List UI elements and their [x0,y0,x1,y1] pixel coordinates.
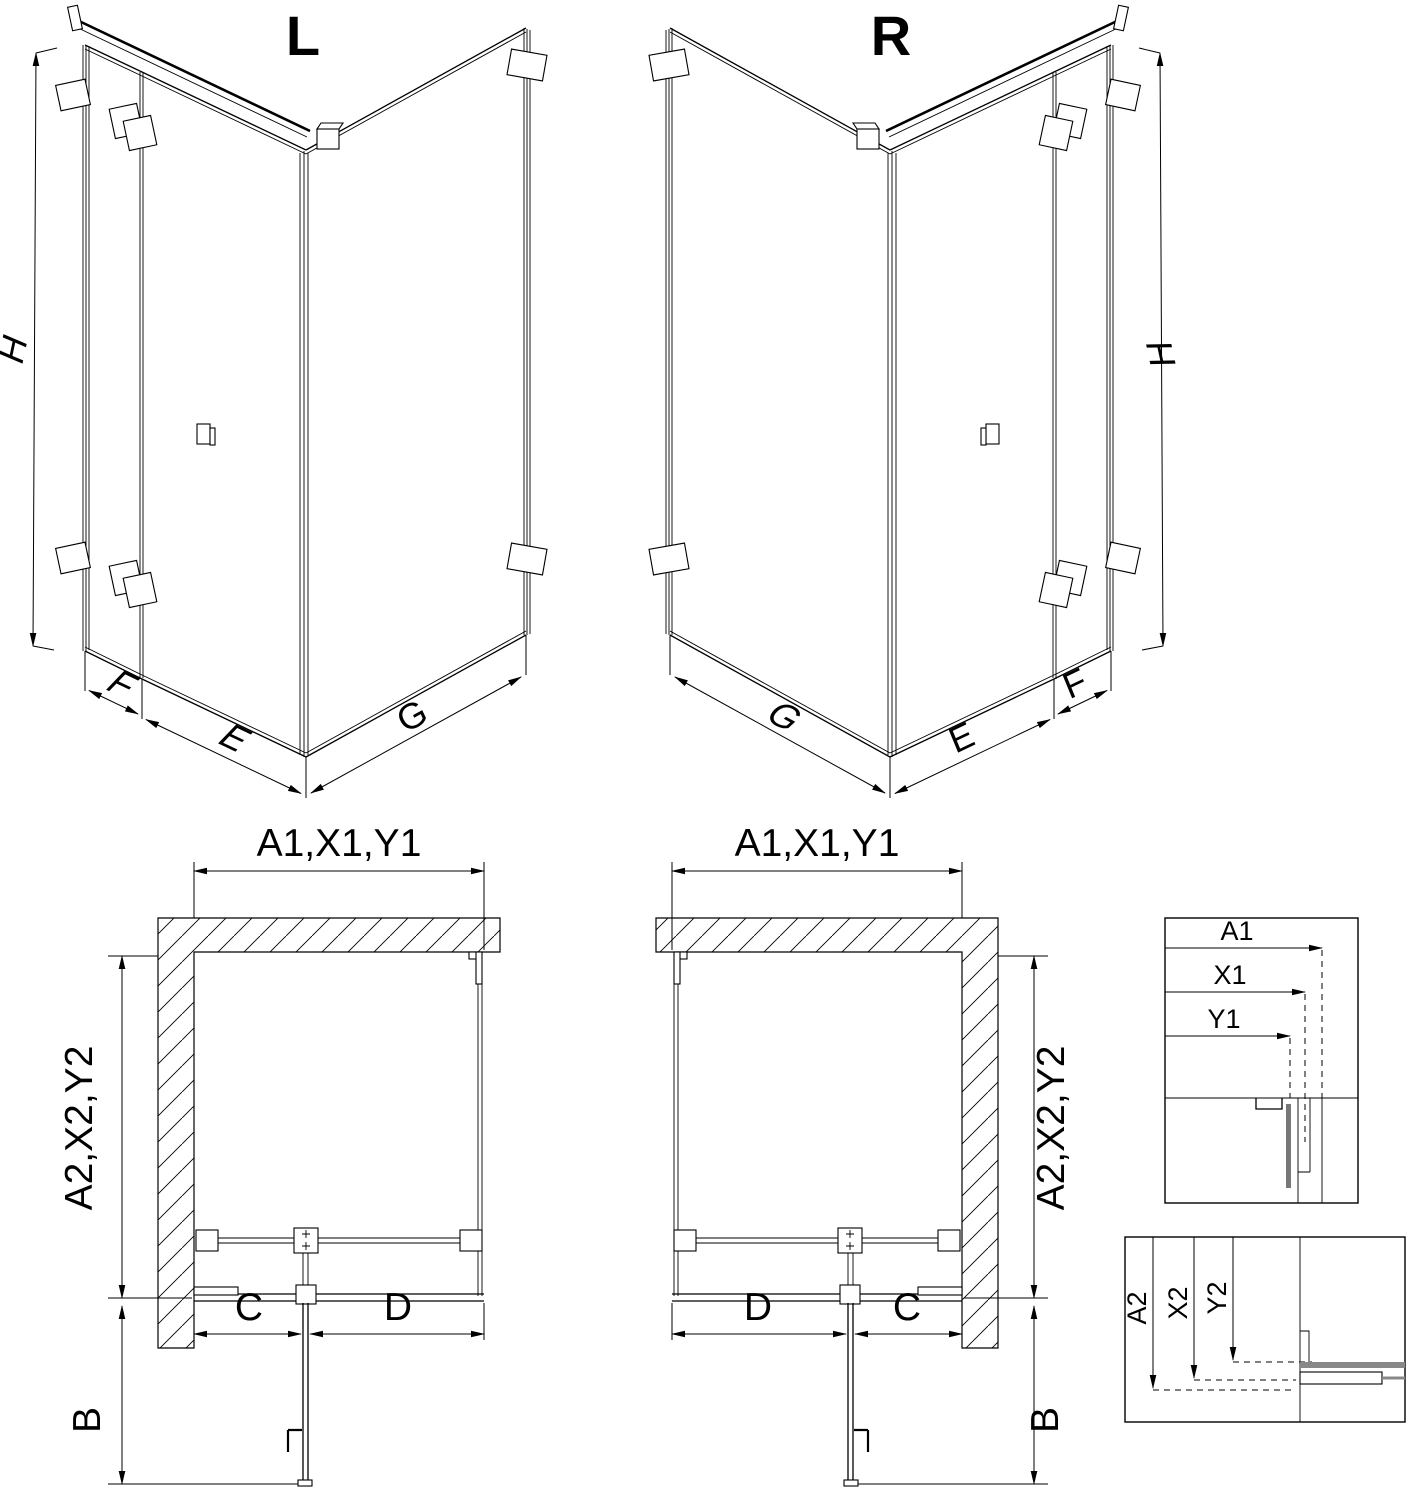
corner-clamp-top [853,123,879,129]
corner-clamp-top [317,123,343,129]
door-hinge-lower [1039,572,1073,607]
detail-label-a1: A1 [1220,916,1253,946]
detail-label-x1: X1 [1213,960,1246,990]
door-handle [986,424,999,444]
door-handle-plan [854,1430,868,1452]
dim-label-open: B [66,1407,109,1433]
dim-label-g: G [387,693,436,739]
profile-section [1300,1372,1382,1384]
door-handle-plan [288,1430,302,1452]
sill-wall-profile [918,1287,962,1295]
wall-bracket [56,542,91,574]
sill-wall-profile [194,1287,238,1295]
iso-right-title: R [871,4,911,67]
panel-wall-profile [476,952,482,984]
glass-section [1300,1362,1405,1368]
bar-wall-mount [938,1230,960,1251]
detail-box-depth: A2 X2 Y2 [1122,1237,1405,1422]
dim-label-top: A1,X1,Y1 [735,822,900,865]
iso-view-left: L H [0,4,547,798]
plan-view-right: A1,X1,Y1 A2,X2,Y2 B C D [656,822,1073,1486]
plan-view-left: A1,X1,Y1 A2,X2,Y2 B C D [58,822,500,1486]
dim-label-side: A2,X2,Y2 [58,1046,101,1211]
dim-label-h: H [1138,337,1184,372]
dim-label-d: D [384,1286,412,1329]
door-handle [197,424,210,444]
detail-box-width: A1 X1 Y1 [1165,916,1358,1203]
technical-drawing: L H [0,0,1416,1499]
corner-clamp [857,129,879,149]
shower-enclosure-dimension-diagram: L H [0,0,1416,1499]
dim-label-open: B [1024,1407,1067,1433]
door-handle-side [981,428,986,445]
bar-corner-mount [674,1230,696,1251]
door-edge-cap [298,1480,312,1486]
wall-bracket [649,49,689,81]
wall-bracket [649,543,689,575]
bar-corner-mount [460,1230,482,1251]
dim-label-g: G [760,693,809,739]
bar-end-cap [1114,5,1129,31]
wall-section [158,918,500,1348]
dim-label-c: C [235,1286,263,1329]
bar-end-cap [68,5,83,31]
door-hinge-upper [1039,115,1073,150]
dim-label-e: E [939,715,984,760]
door-hinge-lower [123,572,157,607]
bar-wall-mount [196,1230,218,1251]
iso-view-right: R H E F G [649,4,1184,798]
detail-label-a2: A2 [1122,1291,1152,1324]
detail-label-y2: Y2 [1202,1281,1232,1314]
wall-section [656,918,998,1348]
dim-label-side: A2,X2,Y2 [1030,1046,1073,1211]
dim-label-e: E [213,715,258,760]
panel-wall-profile [674,952,680,984]
wall-bracket [507,49,547,81]
wall-bracket [507,543,547,575]
dim-label-top: A1,X1,Y1 [257,822,422,865]
dim-label-d: D [744,1286,772,1329]
door-handle-side [210,428,215,445]
wall-bracket [1106,542,1141,574]
iso-left-title: L [286,4,320,67]
dim-label-h: H [0,331,36,366]
dim-label-c: C [893,1286,921,1329]
door-hinge-upper [123,115,157,150]
door-pivot [840,1285,860,1304]
detail-label-x2: X2 [1163,1286,1193,1319]
glass-section [1286,1104,1291,1188]
door-edge-cap [844,1480,858,1486]
wall-bracket [1106,79,1141,111]
detail-label-y1: Y1 [1207,1004,1240,1034]
wall-bracket [56,79,91,111]
corner-clamp [317,129,339,149]
door-pivot [296,1285,316,1304]
